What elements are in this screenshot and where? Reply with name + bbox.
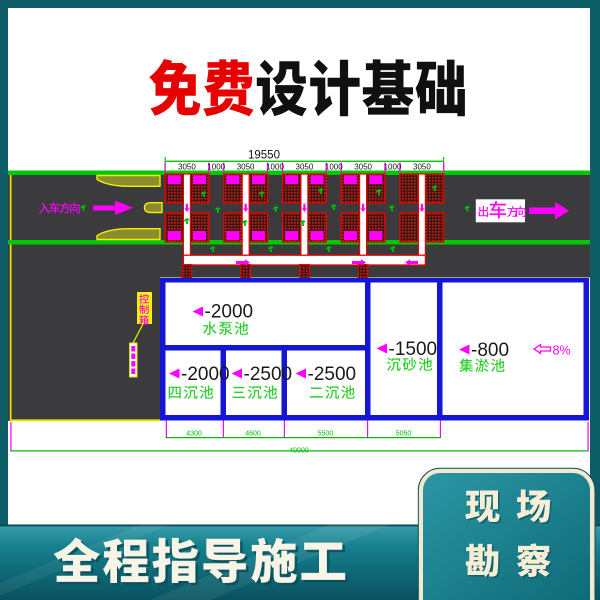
svg-text:40000: 40000 xyxy=(289,448,309,455)
svg-text:3050: 3050 xyxy=(237,162,255,171)
svg-text:5050: 5050 xyxy=(396,431,412,438)
svg-text:1000: 1000 xyxy=(207,162,225,171)
svg-text:-2000: -2000 xyxy=(181,364,230,385)
svg-text:3050: 3050 xyxy=(178,162,196,171)
svg-text:1000: 1000 xyxy=(384,162,402,171)
svg-text:-2500: -2500 xyxy=(308,364,357,385)
svg-text:-800: -800 xyxy=(471,340,509,361)
svg-text:3050: 3050 xyxy=(413,162,431,171)
svg-text:-2000: -2000 xyxy=(205,302,254,323)
svg-text:-2500: -2500 xyxy=(244,364,293,385)
svg-text:4300: 4300 xyxy=(186,431,202,438)
svg-text:8%: 8% xyxy=(553,344,571,358)
svg-text:5500: 5500 xyxy=(318,431,334,438)
svg-text:3050: 3050 xyxy=(296,162,314,171)
svg-text:3050: 3050 xyxy=(354,162,372,171)
svg-text:4600: 4600 xyxy=(245,431,261,438)
svg-text:1000: 1000 xyxy=(266,162,284,171)
svg-text:-1500: -1500 xyxy=(389,339,438,360)
svg-text:19550: 19550 xyxy=(248,149,280,161)
svg-text:1000: 1000 xyxy=(325,162,343,171)
